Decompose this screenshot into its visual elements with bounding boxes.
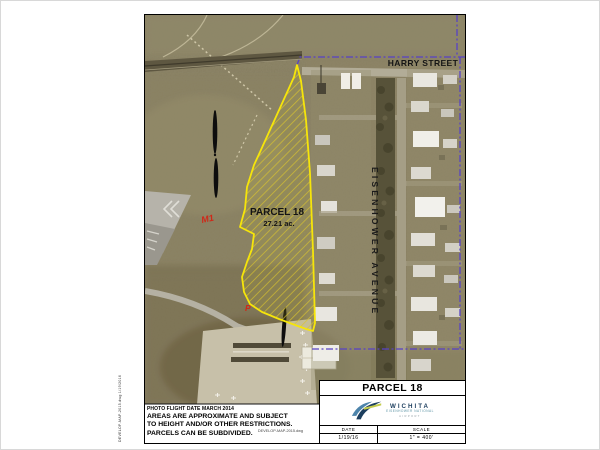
parcel-18-label: PARCEL 18 (250, 207, 305, 218)
logo-subtitle-2: AIRPORT (399, 415, 421, 418)
scale-value: 1" = 400' (378, 434, 465, 444)
logo-subtitle: EISENHOWER NATIONAL (386, 410, 434, 414)
parcel-area-label: 27.21 ac. (263, 219, 294, 228)
drawing-file-label: DEVELOP-MAP-2015.dwg (215, 429, 303, 433)
zoning-label-p: P (245, 303, 251, 313)
plot-stamp-text: DEVELOP-MAP-2015.dwg 1/19/2016 (118, 304, 125, 442)
airport-logo: WICHITA EISENHOWER NATIONAL AIRPORT (320, 396, 465, 425)
title-block-table: DATE SCALE 1/19/16 1" = 400' (320, 425, 465, 444)
harry-street-label: HARRY STREET (388, 58, 459, 68)
map-frame: HARRY STREET EISENHOWER AVENUE PARCEL 18… (144, 14, 466, 444)
apron (197, 319, 317, 404)
scale-label: SCALE (378, 426, 465, 433)
disclaimer-line-1: AREAS ARE APPROXIMATE AND SUBJECT (147, 413, 315, 422)
title-block-title: PARCEL 18 (320, 381, 465, 396)
document-page: DEVELOP-MAP-2015.dwg 1/19/2016 (0, 0, 600, 450)
east-buildings (407, 60, 465, 390)
disclaimer-block: PHOTO FLIGHT DATE MARCH 2014 AREAS ARE A… (147, 406, 315, 439)
date-value: 1/19/16 (320, 434, 378, 444)
eisenhower-road (397, 78, 406, 398)
west-buildings (311, 65, 371, 390)
title-block: PARCEL 18 WICHITA EISENHOWER NATIONAL AI… (319, 380, 466, 444)
eisenhower-avenue-label: EISENHOWER AVENUE (370, 167, 380, 316)
aerial-photo: HARRY STREET EISENHOWER AVENUE PARCEL 18… (145, 15, 465, 443)
date-label: DATE (320, 426, 378, 433)
wichita-airport-logo-icon (351, 399, 383, 422)
